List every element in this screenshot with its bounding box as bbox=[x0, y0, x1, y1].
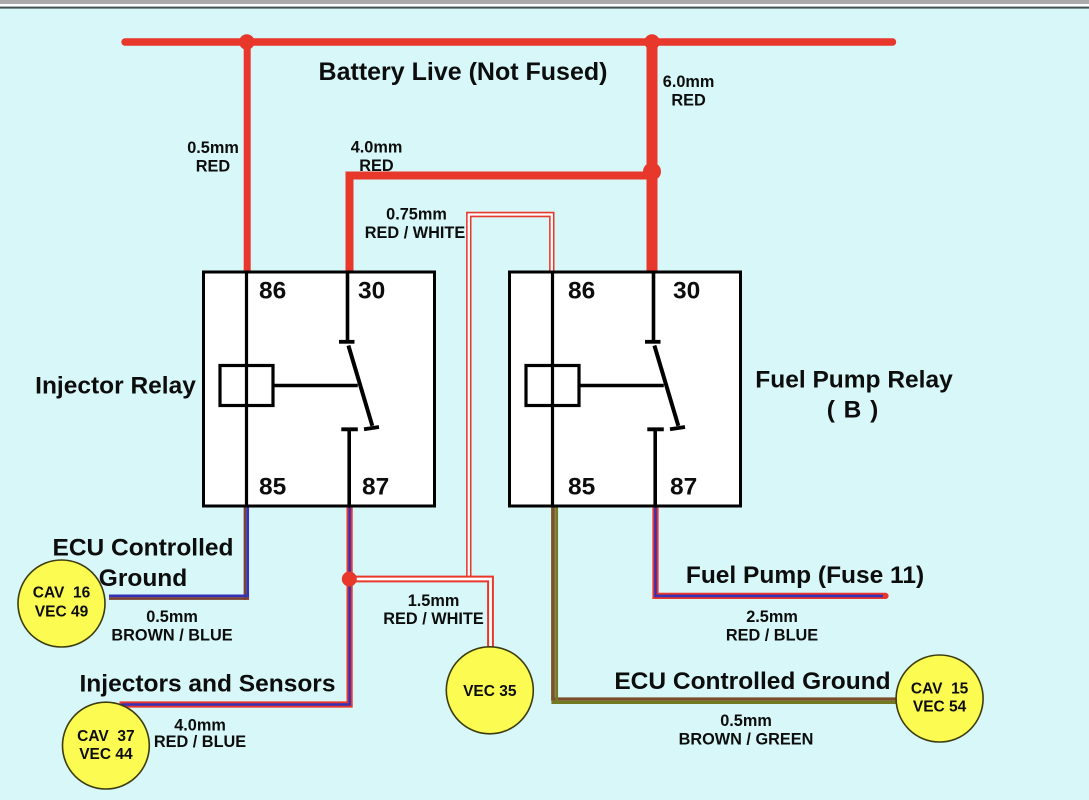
svg-text:1.5mm: 1.5mm bbox=[408, 592, 460, 610]
svg-text:RED / BLUE: RED / BLUE bbox=[726, 627, 818, 645]
svg-text:BROWN / GREEN: BROWN / GREEN bbox=[679, 731, 814, 749]
svg-text:6.0mm: 6.0mm bbox=[663, 73, 715, 91]
svg-text:RED / BLUE: RED / BLUE bbox=[154, 733, 246, 751]
svg-text:4.0mm: 4.0mm bbox=[174, 717, 226, 735]
svg-text:CAV 15: CAV 15 bbox=[911, 680, 969, 697]
svg-text:4.0mm: 4.0mm bbox=[351, 139, 403, 157]
svg-text:0.5mm: 0.5mm bbox=[187, 139, 239, 157]
svg-text:Fuel Pump (Fuse 11): Fuel Pump (Fuse 11) bbox=[686, 562, 924, 589]
svg-text:Injector Relay: Injector Relay bbox=[35, 373, 196, 400]
svg-text:30: 30 bbox=[673, 278, 700, 305]
svg-text:VEC 44: VEC 44 bbox=[79, 746, 133, 763]
svg-text:85: 85 bbox=[568, 474, 595, 501]
svg-text:RED: RED bbox=[671, 92, 706, 110]
svg-text:( B ): ( B ) bbox=[827, 397, 880, 424]
svg-text:0.5mm: 0.5mm bbox=[146, 608, 198, 626]
svg-text:CAV 37: CAV 37 bbox=[77, 728, 134, 745]
svg-text:ECU Controlled: ECU Controlled bbox=[52, 535, 233, 562]
svg-text:87: 87 bbox=[670, 474, 697, 501]
svg-text:Fuel Pump Relay: Fuel Pump Relay bbox=[755, 367, 953, 394]
svg-text:0.5mm: 0.5mm bbox=[720, 712, 772, 730]
svg-text:RED / WHITE: RED / WHITE bbox=[383, 610, 484, 628]
svg-text:Ground: Ground bbox=[99, 565, 187, 592]
svg-text:85: 85 bbox=[259, 474, 286, 501]
svg-text:RED: RED bbox=[196, 158, 231, 176]
svg-text:2.5mm: 2.5mm bbox=[746, 608, 798, 626]
svg-text:Injectors and Sensors: Injectors and Sensors bbox=[80, 670, 336, 697]
svg-text:VEC 49: VEC 49 bbox=[35, 604, 89, 621]
svg-text:VEC 35: VEC 35 bbox=[463, 683, 517, 700]
svg-text:CAV 16: CAV 16 bbox=[33, 585, 91, 602]
svg-text:RED / WHITE: RED / WHITE bbox=[365, 224, 466, 242]
svg-text:ECU Controlled Ground: ECU Controlled Ground bbox=[614, 668, 890, 695]
svg-text:VEC 54: VEC 54 bbox=[913, 699, 967, 716]
svg-text:87: 87 bbox=[362, 474, 389, 501]
svg-text:0.75mm: 0.75mm bbox=[386, 206, 447, 224]
svg-text:BROWN / BLUE: BROWN / BLUE bbox=[111, 627, 232, 645]
svg-text:Battery Live (Not Fused): Battery Live (Not Fused) bbox=[319, 58, 608, 86]
svg-text:86: 86 bbox=[568, 278, 595, 305]
svg-text:86: 86 bbox=[259, 278, 286, 305]
svg-text:RED: RED bbox=[359, 157, 394, 175]
svg-text:30: 30 bbox=[358, 278, 385, 305]
